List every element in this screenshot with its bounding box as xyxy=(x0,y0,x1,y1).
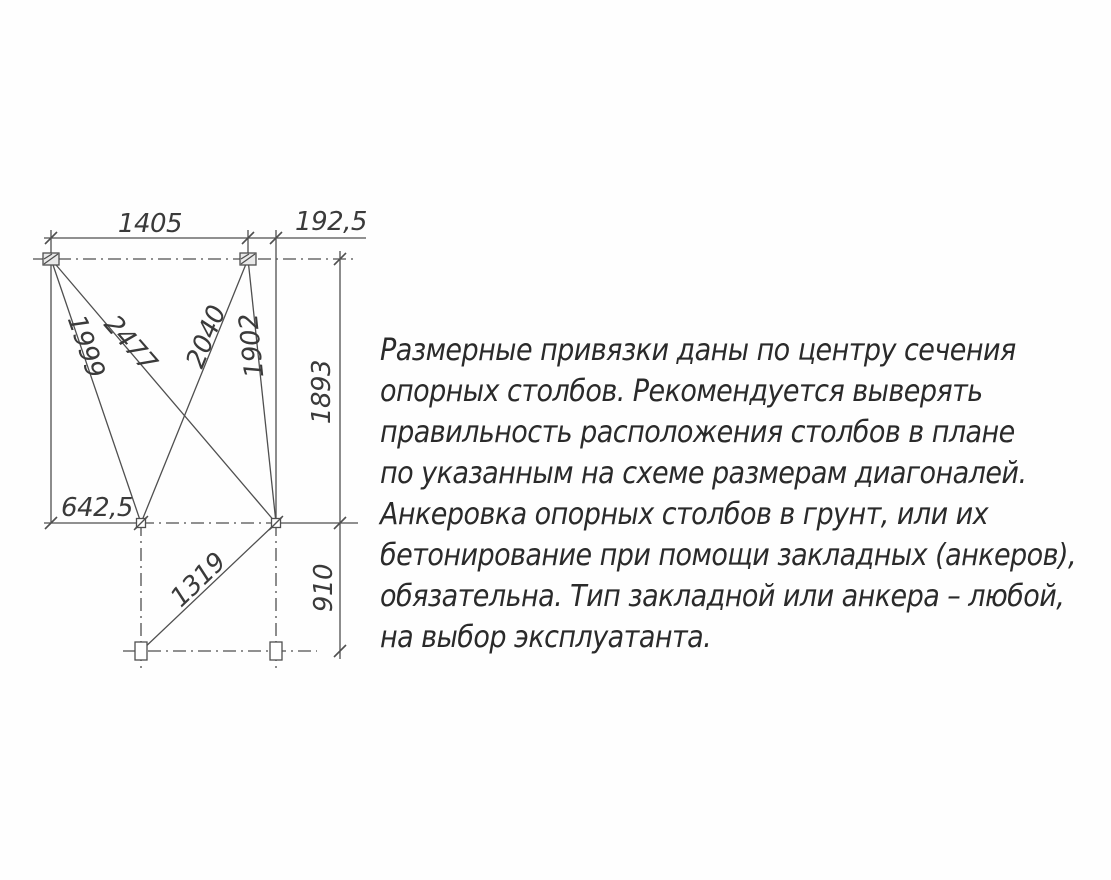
post-bottom-right xyxy=(270,642,282,660)
dim-label-910: 910 xyxy=(309,564,339,612)
dim-label-642-5: 642,5 xyxy=(61,493,133,523)
dim-label-2040: 2040 xyxy=(181,302,233,373)
dim-label-1902: 1902 xyxy=(234,312,271,379)
dim-label-192-5: 192,5 xyxy=(295,207,367,237)
note-line: на выбор эксплуатанта. xyxy=(380,617,1019,658)
note-line: правильность расположения столбов в план… xyxy=(380,412,1019,453)
diag-line-1999 xyxy=(51,259,141,523)
diag-line-2040 xyxy=(141,259,248,523)
note-line: опорных столбов. Рекомендуется выверять xyxy=(380,371,1019,412)
note-line: Анкеровка опорных столбов в грунт, или и… xyxy=(380,494,1019,535)
diag-line-1902 xyxy=(248,259,276,523)
note-line: бетонирование при помощи закладных (анке… xyxy=(380,535,1019,576)
note-line: обязательна. Тип закладной или анкера – … xyxy=(380,576,1019,617)
note-line: Размерные привязки даны по центру сечени… xyxy=(380,330,1019,371)
drawing-page: 1405 192,5 1893 642,5 910 1999 2477 2040… xyxy=(0,0,1111,880)
dim-label-1405: 1405 xyxy=(118,209,182,239)
notes-block: Размерные привязки даны по центру сечени… xyxy=(380,330,1090,658)
note-line: по указанным на схеме размерам диагонале… xyxy=(380,453,1019,494)
dim-label-1319: 1319 xyxy=(165,547,232,613)
post-bottom-left xyxy=(135,642,147,660)
diag-line-2477 xyxy=(51,259,276,523)
dim-label-1999: 1999 xyxy=(61,311,110,381)
dim-label-1893: 1893 xyxy=(307,360,337,424)
